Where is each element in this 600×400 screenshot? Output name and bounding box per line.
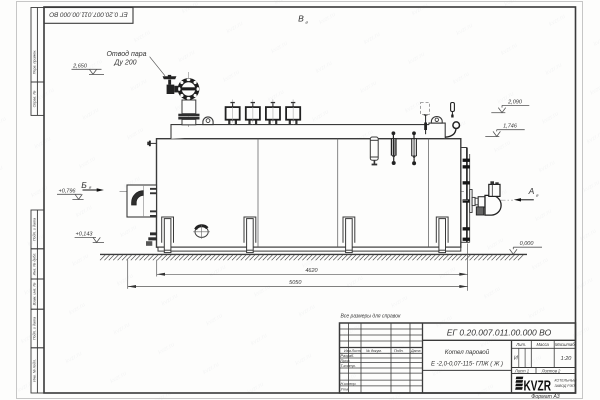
svg-text:KVZR: KVZR (524, 378, 552, 394)
svg-text:2,090: 2,090 (507, 99, 523, 105)
svg-text:А: А (528, 186, 535, 196)
svg-text:Т.контр.: Т.контр. (341, 364, 356, 368)
svg-text:Пров.: Пров. (341, 359, 351, 363)
svg-text:2,650: 2,650 (72, 63, 88, 69)
svg-text:Взам. инв. №: Взам. инв. № (33, 283, 37, 306)
svg-text:1,746: 1,746 (503, 124, 518, 130)
svg-text:+0,796: +0,796 (59, 188, 77, 194)
svg-text:Лит.: Лит. (515, 342, 526, 347)
svg-text:Подп. и дата: Подп. и дата (33, 317, 37, 340)
svg-text:Отвод пара: Отвод пара (106, 50, 146, 58)
svg-text:Справ. №: Справ. № (33, 91, 37, 108)
svg-text:ЕГ 0.20.007.011.00.000 ВО: ЕГ 0.20.007.011.00.000 ВО (447, 327, 552, 337)
svg-text:+0,143: +0,143 (76, 231, 94, 237)
svg-text:Масса: Масса (537, 342, 550, 347)
svg-text:1:20: 1:20 (561, 356, 573, 362)
svg-text:Инв. № дубл.: Инв. № дубл. (33, 253, 37, 276)
svg-text:№ докум.: № докум. (366, 349, 382, 353)
svg-text:Изм.Лист: Изм.Лист (344, 349, 361, 353)
svg-text:Масштаб: Масштаб (555, 342, 575, 347)
svg-text:ЕГ 0.20.007.011.00.000 ВО: ЕГ 0.20.007.011.00.000 ВО (49, 11, 128, 18)
svg-text:Ду 200: Ду 200 (113, 59, 136, 66)
svg-text:Б: Б (81, 180, 87, 190)
svg-text:КОТЕЛЬНЫЙ: КОТЕЛЬНЫЙ (555, 379, 578, 383)
svg-text:Н.контр.: Н.контр. (341, 382, 357, 386)
svg-text:0,000: 0,000 (520, 241, 535, 247)
svg-text:4620: 4620 (305, 268, 318, 274)
svg-text:Инв. № подл.: Инв. № подл. (33, 359, 37, 382)
svg-text:ЗАВОД РЭП: ЗАВОД РЭП (555, 384, 576, 388)
svg-text:Е -2,0-0,07-115- ГЛЖ ( Ж ): Е -2,0-0,07-115- ГЛЖ ( Ж ) (431, 362, 503, 368)
svg-text:Подп. и дата: Подп. и дата (33, 218, 37, 241)
svg-text:Дата: Дата (410, 349, 420, 353)
svg-text:В: В (298, 14, 304, 24)
svg-text:Перв. примен.: Перв. примен. (33, 50, 37, 75)
svg-text:Разраб.: Разраб. (341, 354, 355, 358)
svg-text:Котел паровой: Котел паровой (445, 349, 490, 356)
svg-text:5050: 5050 (289, 280, 302, 286)
svg-text:Утв.: Утв. (341, 388, 350, 392)
svg-text:Лист 1: Лист 1 (514, 368, 529, 373)
svg-text:Все размеры для справок: Все размеры для справок (341, 314, 402, 320)
svg-text:Подп.: Подп. (394, 349, 404, 353)
svg-text:Формат А3: Формат А3 (531, 394, 559, 400)
svg-text:Листов 2: Листов 2 (541, 368, 561, 373)
svg-text:И: И (514, 356, 518, 362)
